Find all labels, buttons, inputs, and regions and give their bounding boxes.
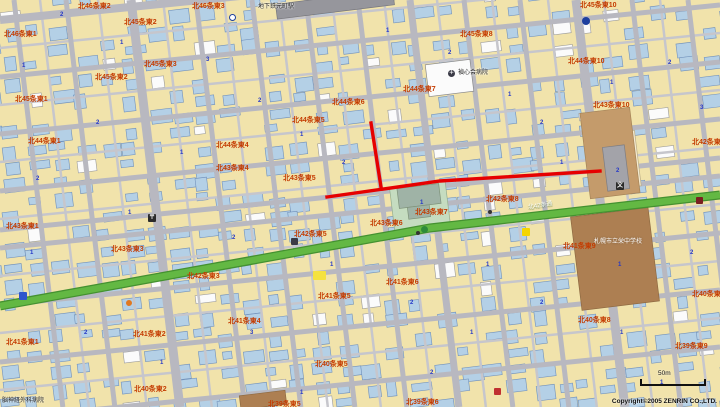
scale-label: 50m [658, 370, 671, 377]
copyright-notice: Copyright©2005 ZENRIN CO.,LTD. [612, 398, 717, 405]
corner-note: 脳神経外科病院 [2, 395, 44, 404]
map-base-tiles [0, 0, 720, 407]
scale-bar [640, 379, 706, 386]
map-canvas[interactable]: 2131212121212123212121212131212111211 ＋〒… [0, 0, 720, 407]
